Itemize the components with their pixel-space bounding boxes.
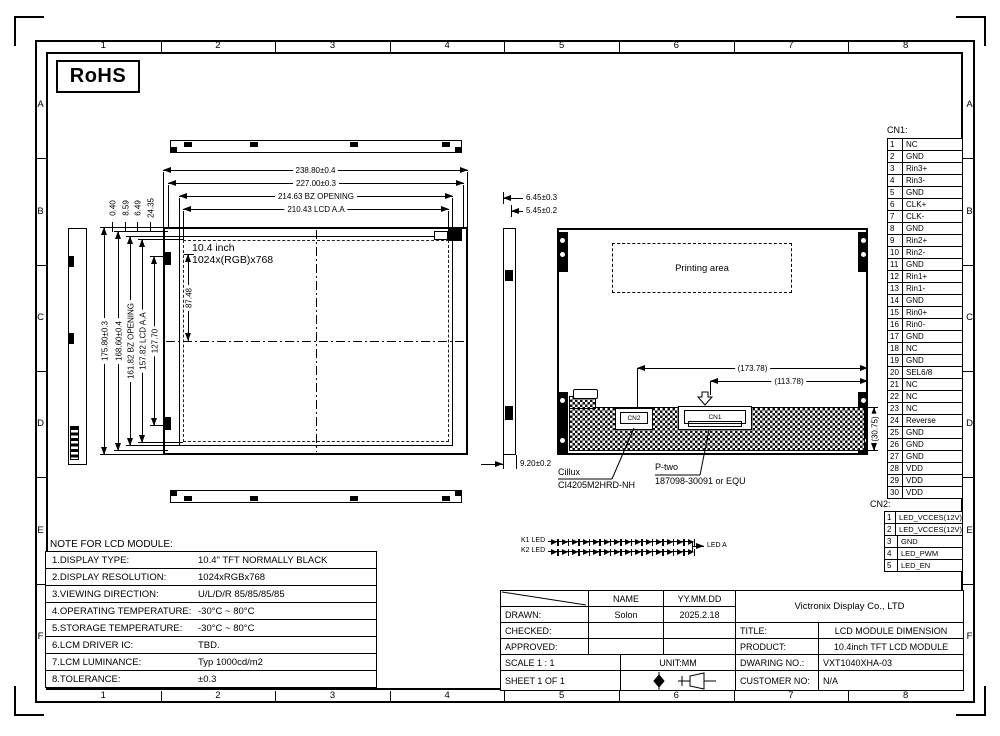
zone-row-label: D — [964, 418, 975, 430]
zone-tick — [390, 40, 391, 52]
graphic — [502, 592, 586, 605]
zone-row-label: E — [35, 525, 46, 537]
zone-tick — [963, 584, 975, 585]
zone-col-label: 2 — [210, 40, 226, 52]
zone-col-label: 7 — [783, 40, 799, 52]
zone-tick — [275, 40, 276, 52]
zone-tick — [963, 371, 975, 372]
zone-col-label: 4 — [439, 690, 455, 703]
zone-tick — [275, 691, 276, 703]
graphic — [612, 428, 634, 479]
zone-row-label: A — [35, 99, 46, 111]
zone-tick — [35, 371, 46, 372]
zone-tick — [963, 158, 975, 159]
zone-tick — [35, 265, 46, 266]
zone-tick — [963, 265, 975, 266]
zone-row-label: C — [35, 312, 46, 324]
zone-tick — [963, 477, 975, 478]
zone-tick — [504, 40, 505, 52]
leader-overlay — [0, 0, 1000, 736]
zone-row-label: C — [964, 312, 975, 324]
zone-tick — [35, 158, 46, 159]
zone-row-label: B — [964, 206, 975, 218]
zone-col-label: 7 — [783, 690, 799, 703]
zone-tick — [161, 691, 162, 703]
zone-tick — [848, 40, 849, 52]
zone-row-label: F — [964, 631, 975, 643]
zone-col-label: 6 — [668, 40, 684, 52]
zone-row-label: E — [964, 525, 975, 537]
zone-tick — [619, 40, 620, 52]
zone-row-label: A — [964, 99, 975, 111]
zone-col-label: 1 — [95, 40, 111, 52]
pin1-arrow-icon — [698, 392, 712, 405]
zone-row-label: B — [35, 206, 46, 218]
zone-row-label: F — [35, 631, 46, 643]
zone-tick — [390, 691, 391, 703]
zone-col-label: 8 — [898, 40, 914, 52]
zone-tick — [734, 691, 735, 703]
graphic — [700, 430, 709, 475]
zone-tick — [35, 584, 46, 585]
zone-tick — [35, 477, 46, 478]
zone-col-label: 3 — [325, 40, 341, 52]
zone-col-label: 5 — [554, 40, 570, 52]
drawing-sheet: RoHS 10.4 inch 1024x(RGB)x768 238.80±0.4… — [0, 0, 1000, 736]
zone-col-label: 6 — [668, 690, 684, 703]
zone-row-label: D — [35, 418, 46, 430]
zone-col-label: 8 — [898, 690, 914, 703]
zone-tick — [848, 691, 849, 703]
zone-col-label: 4 — [439, 40, 455, 52]
zone-tick — [734, 40, 735, 52]
zone-tick — [619, 691, 620, 703]
zone-col-label: 2 — [210, 690, 226, 703]
zone-col-label: 1 — [95, 690, 111, 703]
zone-col-label: 3 — [325, 690, 341, 703]
zone-tick — [504, 691, 505, 703]
zone-tick — [161, 40, 162, 52]
zone-col-label: 5 — [554, 690, 570, 703]
